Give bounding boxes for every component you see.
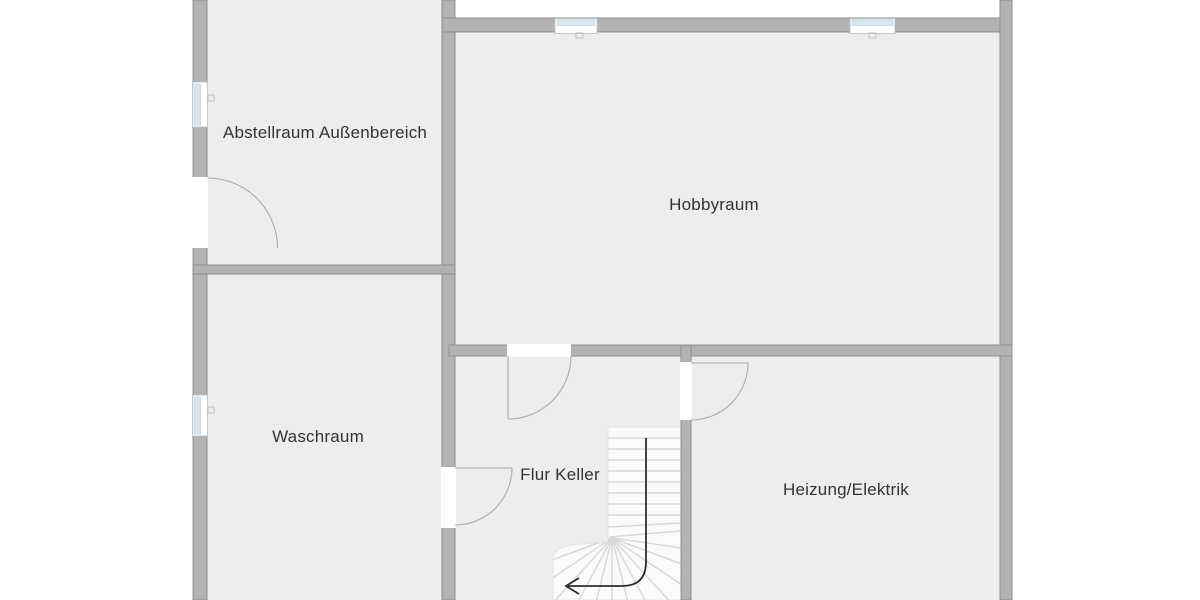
floor-plan-page: Abstellraum Außenbereich Hobbyraum Wasch… (0, 0, 1200, 600)
rooms-floor-area (193, 0, 1012, 600)
wall-exterior-top (442, 18, 1012, 32)
room-label-hobbyraum: Hobbyraum (669, 195, 759, 215)
room-label-heizung-elektrik: Heizung/Elektrik (783, 480, 909, 500)
opening-flur-heizung (680, 362, 692, 420)
outside-area-top (455, 0, 1000, 18)
room-label-waschraum: Waschraum (272, 427, 364, 447)
opening-waschraum-flur (441, 467, 456, 528)
room-label-abstellraum: Abstellraum Außenbereich (223, 123, 427, 143)
floor-plan-canvas (0, 0, 1200, 600)
room-label-flur-keller: Flur Keller (520, 465, 600, 485)
opening-hobbyraum-flur (507, 344, 571, 357)
wall-exterior-right (1000, 0, 1012, 600)
wall-abstellraum-waschraum (193, 265, 455, 274)
opening-abstellraum-exterior (192, 177, 208, 248)
